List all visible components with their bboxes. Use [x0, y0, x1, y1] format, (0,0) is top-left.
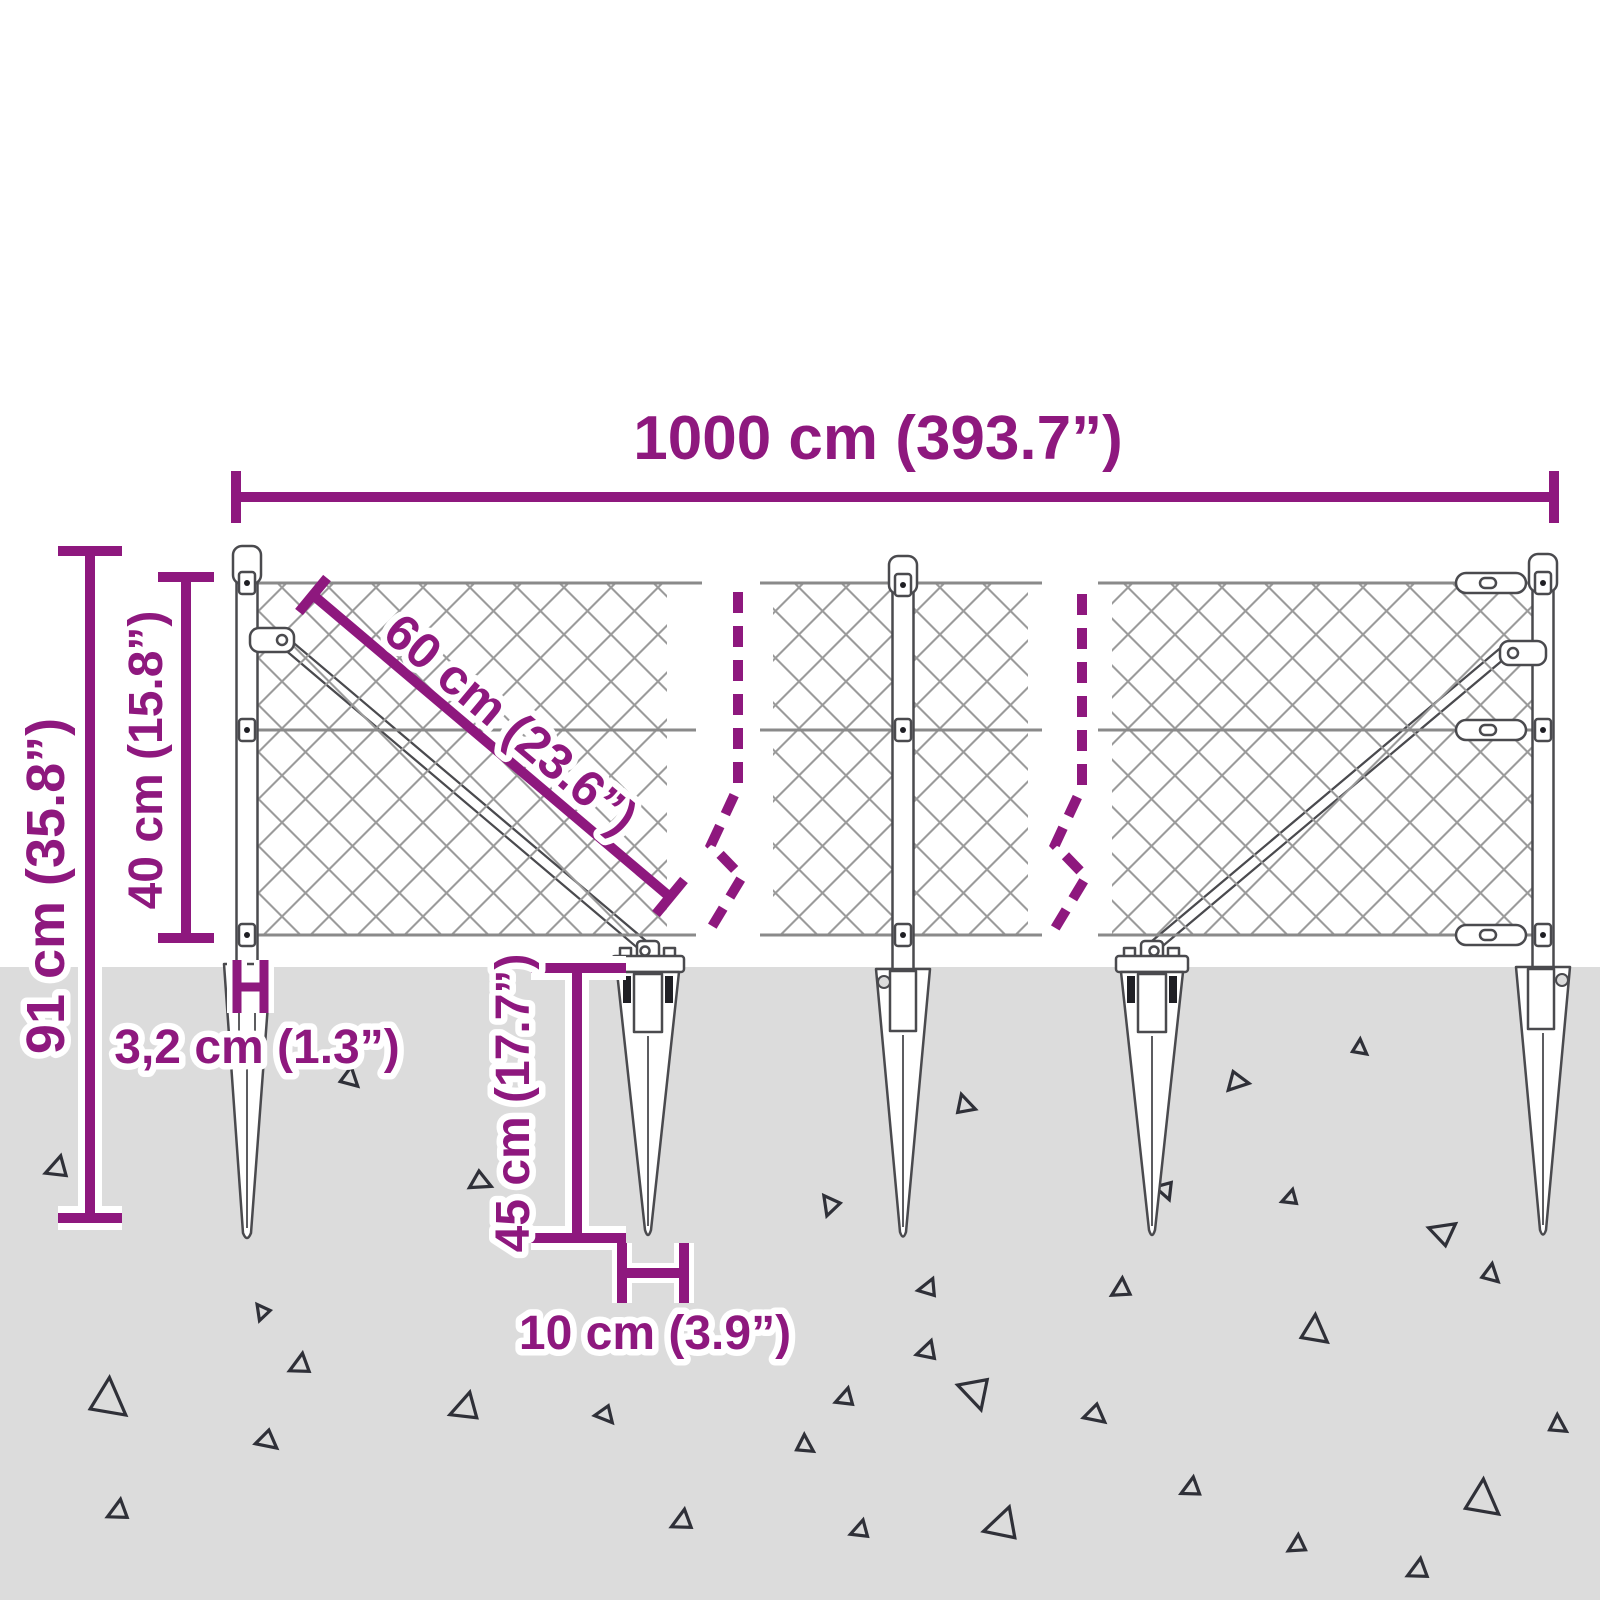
anchor-bolt — [1127, 976, 1135, 1003]
plate-hole — [878, 976, 890, 988]
plate-hole — [1556, 974, 1568, 986]
fence-drawing — [233, 546, 1557, 983]
anchor-bolt — [665, 976, 673, 1003]
post-right — [1529, 554, 1557, 983]
dim-label-total-height: 91 cm (35.8”) — [16, 718, 76, 1054]
dim-label-spike-width: 10 cm (3.9”) — [519, 1307, 791, 1360]
anchor-bolt — [623, 976, 631, 1003]
post-left — [233, 546, 261, 967]
diagram-canvas: 1000 cm (393.7”) 91 cm (35.8”) 40 cm (15… — [0, 0, 1600, 1600]
dim-label-mesh-height: 40 cm (15.8”) — [120, 611, 173, 910]
mesh-panel-right — [1112, 583, 1532, 935]
anchor-bolt — [1169, 976, 1177, 1003]
dim-label-spike-length: 45 cm (17.7”) — [487, 954, 540, 1253]
dim-label-fence-length: 1000 cm (393.7”) — [633, 404, 1122, 473]
mesh-panel-left — [252, 583, 667, 935]
dim-label-post-width: 3,2 cm (1.3”) — [114, 1021, 399, 1074]
post-middle — [889, 556, 917, 983]
dimension-diagram: 1000 cm (393.7”) 91 cm (35.8”) 40 cm (15… — [0, 0, 1600, 1600]
